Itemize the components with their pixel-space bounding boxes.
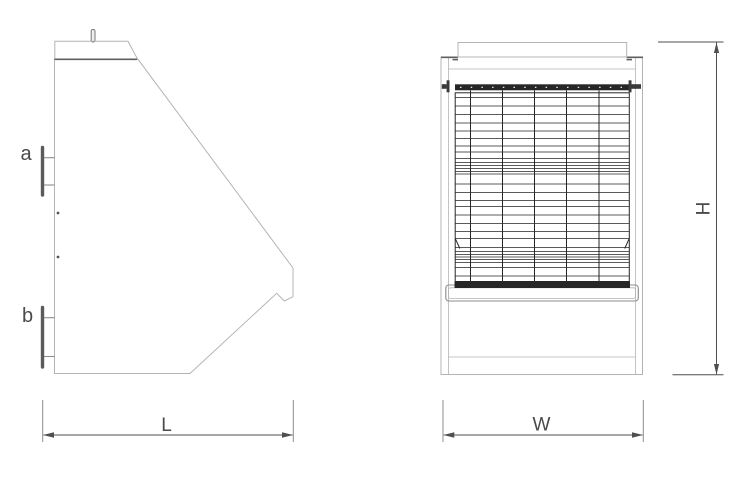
label-b: b xyxy=(22,305,33,327)
rod-bolt-tip-right xyxy=(632,84,642,89)
label-a: a xyxy=(20,143,32,165)
side-view: a b xyxy=(20,30,293,374)
flange-b xyxy=(43,308,55,368)
front-view xyxy=(441,43,643,375)
dim-L-arrow-left xyxy=(43,432,54,437)
grille-horizontals xyxy=(455,98,629,277)
dim-H-arrow-top xyxy=(714,43,719,54)
rod-bolt-left xyxy=(447,80,450,92)
dim-W-arrow-right xyxy=(632,432,643,437)
filter-grille xyxy=(455,91,629,282)
dimension-H: H xyxy=(658,42,724,375)
dim-H-arrow-bottom xyxy=(714,364,719,375)
dim-W-arrow-left xyxy=(443,432,454,437)
dimension-L: L xyxy=(43,400,294,442)
top-collar xyxy=(458,43,627,58)
technical-drawing-page: a b L xyxy=(0,0,750,504)
rivet-dot xyxy=(57,256,60,259)
dimension-W: W xyxy=(443,400,643,442)
label-H: H xyxy=(694,202,715,216)
cabinet-outline xyxy=(441,57,643,375)
grille-corner-hook-right xyxy=(625,239,629,249)
retaining-rod xyxy=(442,80,641,92)
rod-bolt-tip-left xyxy=(442,84,447,89)
tray-inner xyxy=(449,288,636,299)
side-body-outline xyxy=(55,59,294,373)
rod-bar xyxy=(455,84,629,90)
rod-bolt-right xyxy=(629,80,632,92)
grille-bottom-bar xyxy=(455,282,631,289)
top-flange xyxy=(55,41,138,59)
grille-verticals xyxy=(471,91,600,282)
flange-a xyxy=(43,148,55,196)
label-L: L xyxy=(161,415,172,436)
grille-frame xyxy=(455,93,629,282)
hood-technical-drawing: a b L xyxy=(0,0,750,504)
grille-corner-hook-left xyxy=(455,239,459,249)
label-W: W xyxy=(533,415,551,436)
top-pin xyxy=(91,30,95,43)
dim-L-arrow-right xyxy=(282,432,293,437)
rivet-dot xyxy=(57,212,60,215)
